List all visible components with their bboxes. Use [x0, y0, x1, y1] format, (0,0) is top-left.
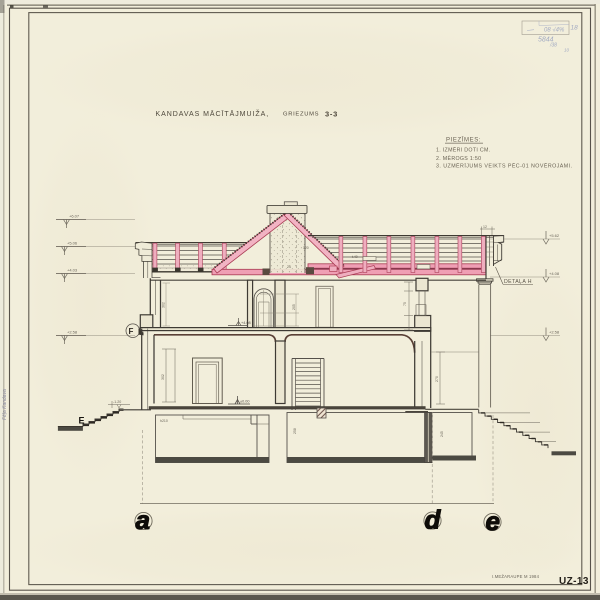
svg-text:10: 10 — [564, 48, 570, 53]
svg-text:UZ-13: UZ-13 — [559, 576, 589, 587]
svg-text:75: 75 — [403, 302, 407, 306]
svg-text:1. IZMĒRI DOTI CM.: 1. IZMĒRI DOTI CM. — [436, 147, 491, 154]
svg-text:+4.08: +4.08 — [549, 271, 560, 276]
svg-text:h210: h210 — [160, 419, 168, 423]
svg-text:245: 245 — [440, 431, 444, 437]
svg-text:a: a — [136, 505, 150, 535]
svg-text:258: 258 — [293, 428, 297, 434]
svg-text:-1.20: -1.20 — [113, 400, 121, 404]
svg-text:302: 302 — [161, 374, 165, 380]
svg-text:+2.58: +2.58 — [67, 330, 78, 335]
svg-text:24: 24 — [287, 265, 291, 269]
svg-text:302: 302 — [162, 302, 166, 308]
svg-text:I.MEŽARAUPE M 1984: I.MEŽARAUPE M 1984 — [492, 574, 540, 579]
svg-text:+5.62: +5.62 — [549, 233, 560, 238]
svg-text:12: 12 — [483, 225, 487, 229]
svg-text:KANDAVAS MĀCĪTĀJMUIŽA,: KANDAVAS MĀCĪTĀJMUIŽA, — [156, 109, 270, 118]
svg-text:GRIEZUMS: GRIEZUMS — [283, 112, 319, 118]
svg-text:+5.06: +5.06 — [67, 241, 78, 246]
svg-text:+4.08: +4.08 — [241, 321, 251, 325]
svg-text:205: 205 — [292, 304, 296, 310]
svg-text:+6.07: +6.07 — [69, 214, 80, 219]
svg-text:3-3: 3-3 — [325, 110, 338, 119]
svg-text:+4.03: +4.03 — [67, 268, 78, 273]
svg-text:08 √4%: 08 √4% — [544, 27, 565, 34]
svg-text:t.40: t.40 — [352, 255, 358, 259]
svg-text:2. MĒROGS 1:50: 2. MĒROGS 1:50 — [436, 155, 481, 162]
svg-text:18: 18 — [571, 25, 579, 32]
svg-text:F: F — [129, 327, 134, 336]
svg-text:120: 120 — [303, 246, 309, 250]
svg-text:e: e — [486, 506, 500, 536]
svg-text:+2.58: +2.58 — [549, 330, 560, 335]
svg-text:DETAĻA H: DETAĻA H — [504, 279, 532, 285]
svg-text:/38: /38 — [549, 43, 557, 49]
svg-text:±0.00: ±0.00 — [240, 400, 249, 404]
svg-text:3. UZMĒRĪJUMS VEIKTS PĒC-01 N: 3. UZMĒRĪJUMS VEIKTS PĒC-01 NOVĒROJAMI. — [436, 163, 572, 170]
svg-text:PIEZĪMES:: PIEZĪMES: — [446, 137, 481, 144]
svg-text:270: 270 — [435, 376, 439, 382]
svg-text:Fēļa Kandava: Fēļa Kandava — [2, 389, 8, 420]
svg-text:d: d — [425, 505, 442, 535]
